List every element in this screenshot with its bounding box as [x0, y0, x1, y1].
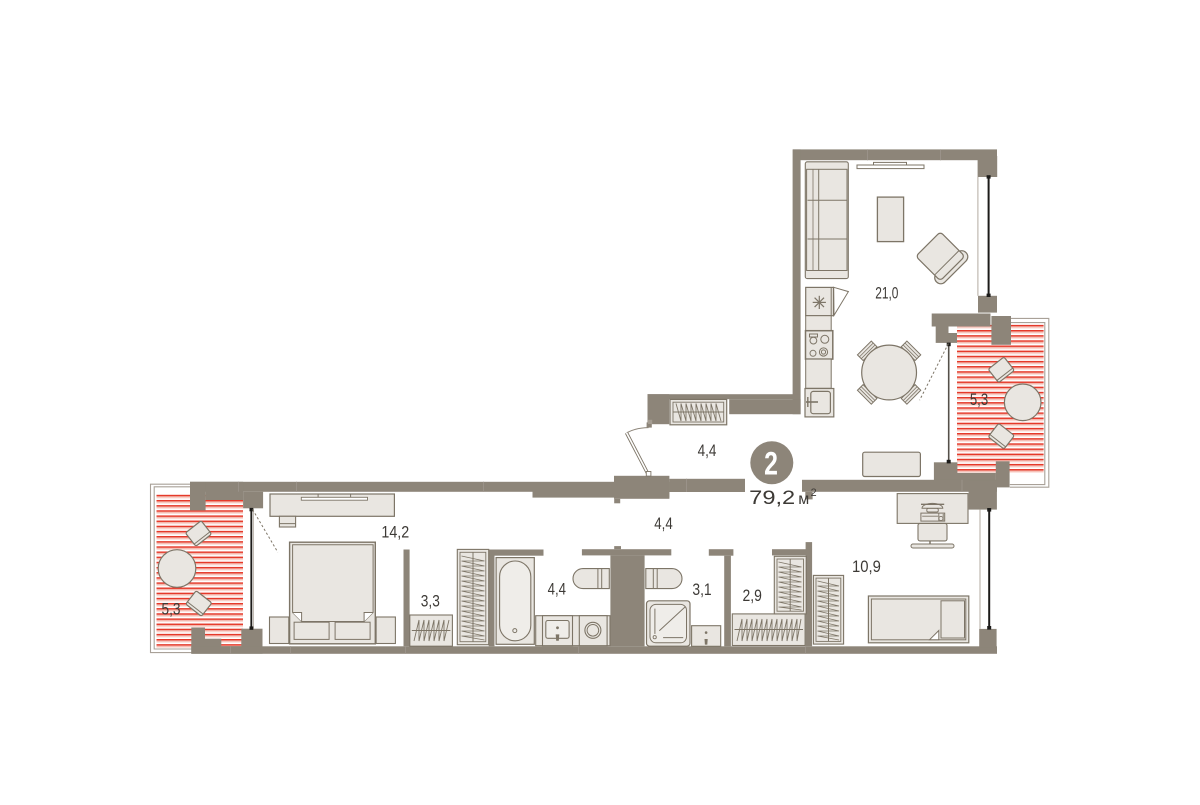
svg-text:м: м: [798, 491, 809, 508]
svg-text:10,9: 10,9: [852, 558, 881, 576]
svg-text:4,4: 4,4: [548, 580, 566, 598]
svg-text:3,1: 3,1: [692, 581, 711, 599]
svg-text:14,2: 14,2: [381, 524, 409, 542]
svg-text:4,4: 4,4: [698, 442, 717, 460]
svg-text:79,2: 79,2: [749, 488, 795, 509]
svg-text:4,4: 4,4: [654, 515, 672, 533]
svg-text:21,0: 21,0: [875, 284, 898, 302]
svg-text:5,3: 5,3: [162, 601, 181, 619]
svg-text:2: 2: [811, 487, 817, 499]
svg-text:5,3: 5,3: [970, 391, 988, 409]
svg-text:3,3: 3,3: [421, 592, 440, 610]
svg-text:2: 2: [764, 446, 778, 482]
svg-text:2,9: 2,9: [743, 587, 762, 605]
